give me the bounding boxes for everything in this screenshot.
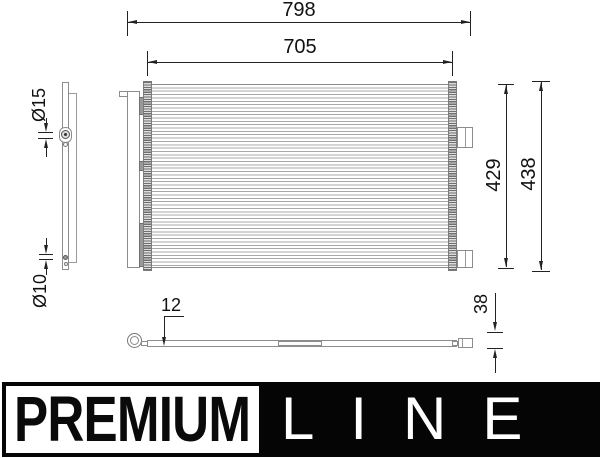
left-header-tank bbox=[143, 81, 152, 271]
dim-arrow-icon bbox=[504, 85, 508, 94]
dim-705-label: 705 bbox=[270, 37, 330, 57]
dim-429-line bbox=[506, 85, 507, 267]
side-port-small-bottom bbox=[64, 262, 68, 266]
mounting-ring-inner bbox=[130, 336, 139, 345]
dim-38-line-bottom bbox=[495, 358, 496, 373]
connector-step-line bbox=[465, 128, 466, 147]
dim-arrow-icon bbox=[148, 60, 157, 64]
dim-o15-tick-top bbox=[38, 132, 53, 133]
logo-white-box: PREMIUM bbox=[2, 382, 263, 457]
top-view-connector bbox=[458, 338, 473, 348]
dim-o15-line-bottom bbox=[46, 148, 47, 157]
right-header-tank bbox=[448, 81, 457, 271]
dim-o10-tick-top bbox=[39, 254, 53, 255]
dim-38-label: 38 bbox=[472, 282, 490, 326]
dim-798-label: 798 bbox=[269, 0, 329, 20]
dim-798-ext-right bbox=[470, 11, 471, 36]
side-flange-line bbox=[76, 93, 77, 263]
dim-429-tick-bottom bbox=[498, 268, 514, 269]
side-port-15-center bbox=[64, 133, 67, 136]
dim-arrow-icon bbox=[461, 20, 470, 24]
dim-438-tick-bottom bbox=[532, 271, 550, 272]
refrigerant-connector-top bbox=[457, 127, 473, 148]
dim-arrow-icon bbox=[493, 349, 497, 358]
condenser-core bbox=[152, 84, 448, 268]
condenser-technical-drawing: 798 705 Ø15 bbox=[0, 0, 600, 458]
dim-798-line bbox=[128, 22, 470, 23]
dim-arrow-icon bbox=[539, 261, 543, 270]
dim-arrow-icon bbox=[539, 82, 543, 91]
dim-12-leader-h bbox=[164, 316, 184, 317]
logo-premium-text: PREMIUM bbox=[14, 386, 210, 452]
dim-arrow-icon bbox=[44, 245, 48, 254]
dim-438-label: 438 bbox=[519, 144, 539, 204]
logo-black-bar: LINE bbox=[263, 382, 600, 457]
dim-arrow-icon bbox=[443, 60, 452, 64]
dim-705-line bbox=[148, 62, 452, 63]
dim-38-tick-top bbox=[487, 332, 503, 333]
side-body bbox=[62, 82, 69, 270]
dim-o10-label: Ø10 bbox=[31, 269, 49, 313]
side-flange-top bbox=[69, 93, 77, 94]
dim-438-line bbox=[541, 82, 542, 270]
connector-step-line bbox=[465, 251, 466, 267]
dim-38-line-top bbox=[495, 293, 496, 323]
dim-arrow-icon bbox=[504, 258, 508, 267]
dim-429-label: 429 bbox=[484, 145, 504, 205]
dim-arrow-icon bbox=[128, 20, 137, 24]
logo-line-text: LINE bbox=[281, 382, 600, 456]
dim-arrow-icon bbox=[162, 337, 166, 346]
dim-arrow-icon bbox=[493, 322, 497, 331]
side-port-10 bbox=[63, 255, 68, 260]
connector-step-line bbox=[462, 339, 463, 347]
dim-12-label: 12 bbox=[151, 296, 191, 314]
dim-705-ext-right bbox=[452, 51, 453, 76]
dim-arrow-icon bbox=[44, 139, 48, 148]
side-flange-bottom bbox=[69, 262, 77, 263]
dim-arrow-icon bbox=[44, 123, 48, 132]
dim-12-leader-v bbox=[164, 316, 165, 338]
dim-arrow-icon bbox=[44, 260, 48, 269]
top-view-sleeve bbox=[278, 341, 322, 346]
side-port-small-top bbox=[63, 142, 68, 147]
refrigerant-connector-bottom bbox=[457, 250, 473, 268]
